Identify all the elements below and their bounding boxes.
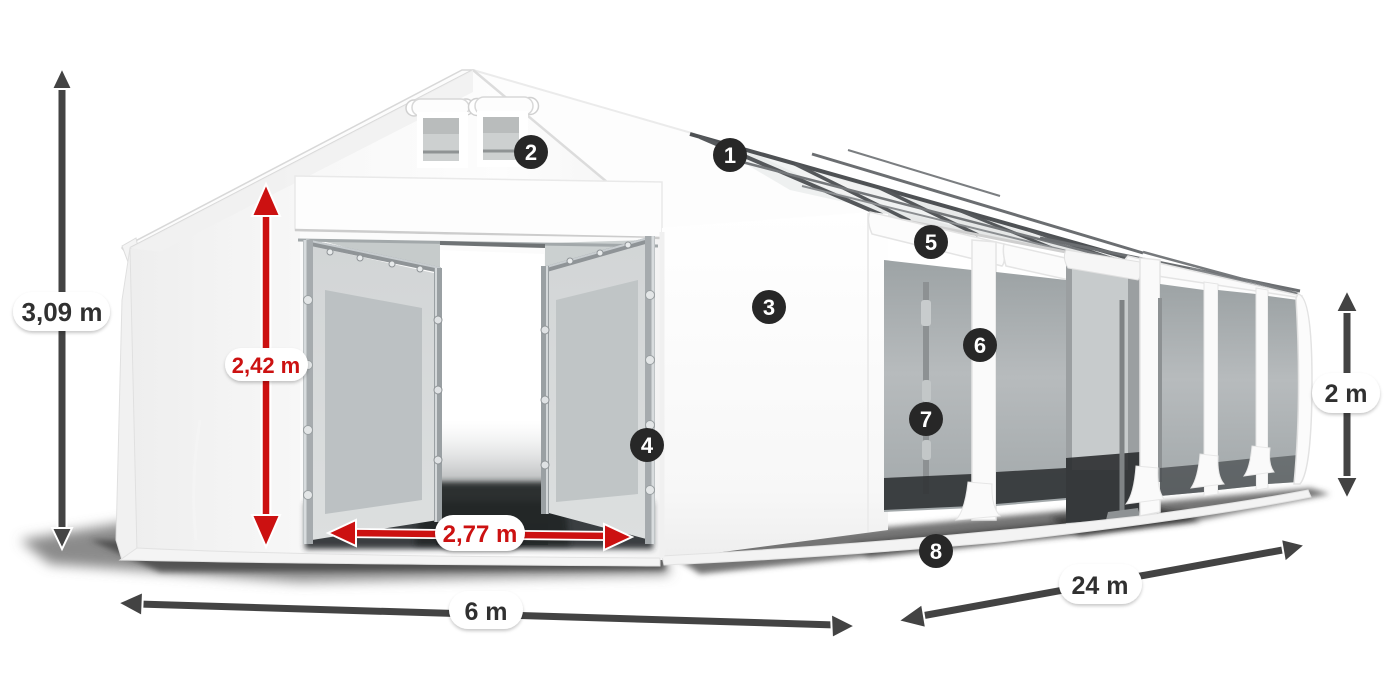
svg-text:2: 2 [525, 140, 537, 165]
svg-text:2,42 m: 2,42 m [232, 353, 301, 378]
svg-text:1: 1 [724, 143, 736, 168]
svg-text:6: 6 [974, 333, 986, 358]
svg-text:2 m: 2 m [1324, 380, 1367, 408]
svg-text:3: 3 [763, 295, 775, 320]
svg-text:2,77 m: 2,77 m [443, 521, 518, 548]
svg-text:4: 4 [641, 433, 654, 458]
svg-text:3,09 m: 3,09 m [22, 297, 103, 327]
svg-text:7: 7 [920, 407, 932, 432]
svg-text:5: 5 [925, 230, 937, 255]
svg-text:24 m: 24 m [1072, 572, 1129, 600]
svg-text:6 m: 6 m [464, 598, 507, 626]
svg-text:8: 8 [930, 539, 942, 564]
